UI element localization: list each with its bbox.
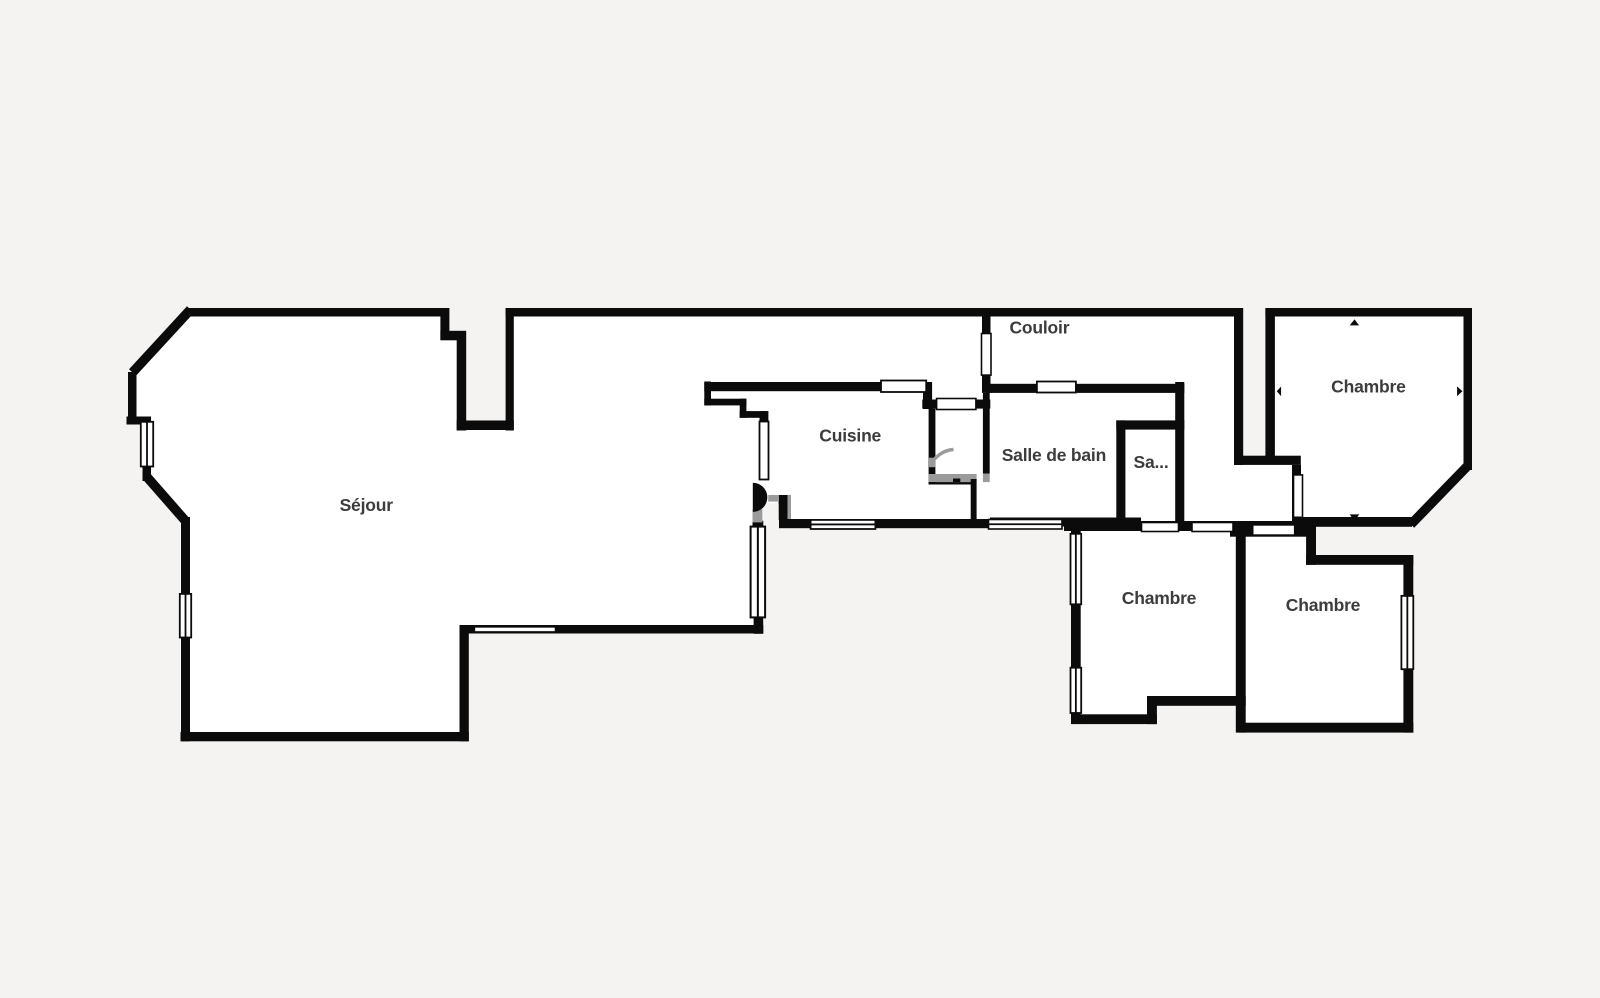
svg-text:Séjour: Séjour — [340, 495, 394, 515]
svg-text:Salle de bain: Salle de bain — [1002, 445, 1106, 465]
svg-text:Chambre: Chambre — [1122, 588, 1197, 608]
svg-text:Cuisine: Cuisine — [819, 426, 881, 446]
svg-text:Chambre: Chambre — [1331, 377, 1406, 397]
svg-text:Chambre: Chambre — [1286, 595, 1361, 615]
svg-text:Sa...: Sa... — [1134, 452, 1169, 472]
svg-text:Couloir: Couloir — [1009, 318, 1069, 338]
